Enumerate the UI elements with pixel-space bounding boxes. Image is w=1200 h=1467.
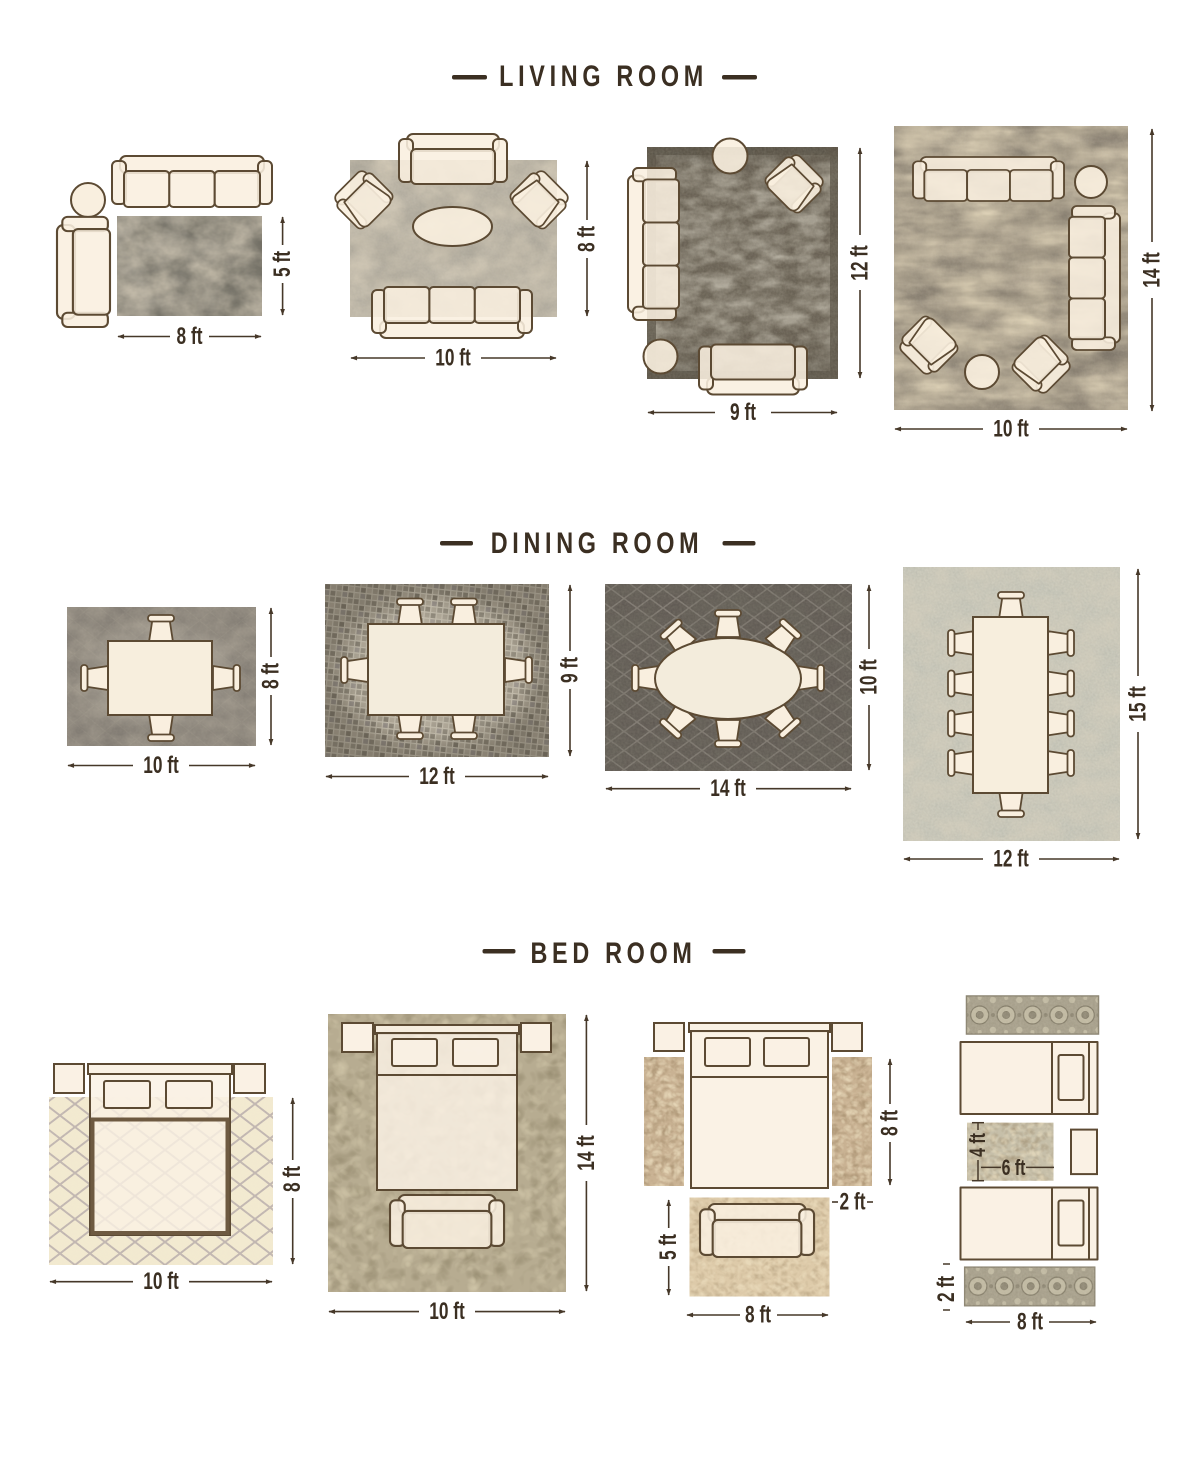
svg-text:10 ft: 10 ft — [993, 416, 1029, 442]
svg-text:BED ROOM: BED ROOM — [530, 936, 696, 969]
svg-text:10 ft: 10 ft — [435, 345, 471, 371]
svg-text:9 ft: 9 ft — [557, 657, 583, 683]
svg-text:12 ft: 12 ft — [993, 846, 1029, 872]
svg-text:14 ft: 14 ft — [1139, 252, 1165, 288]
svg-text:4 ft: 4 ft — [967, 1133, 991, 1157]
svg-text:8 ft: 8 ft — [877, 1110, 903, 1136]
svg-text:6 ft: 6 ft — [1002, 1157, 1026, 1181]
svg-text:10 ft: 10 ft — [143, 752, 179, 778]
svg-text:8 ft: 8 ft — [574, 226, 600, 252]
svg-text:8 ft: 8 ft — [745, 1302, 771, 1328]
svg-text:8 ft: 8 ft — [280, 1166, 306, 1192]
svg-text:8 ft: 8 ft — [177, 323, 203, 349]
svg-text:8 ft: 8 ft — [258, 663, 284, 689]
svg-text:14 ft: 14 ft — [710, 776, 746, 802]
svg-text:LIVING ROOM: LIVING ROOM — [499, 59, 708, 92]
svg-text:10 ft: 10 ft — [429, 1298, 465, 1324]
svg-text:12 ft: 12 ft — [847, 245, 873, 281]
svg-text:2 ft: 2 ft — [933, 1276, 959, 1302]
svg-text:5 ft: 5 ft — [656, 1234, 682, 1260]
svg-text:9 ft: 9 ft — [730, 399, 756, 425]
svg-text:5 ft: 5 ft — [269, 251, 295, 277]
svg-text:DINING ROOM: DINING ROOM — [491, 526, 704, 559]
svg-text:12 ft: 12 ft — [419, 763, 455, 789]
svg-text:8 ft: 8 ft — [1017, 1309, 1043, 1335]
svg-text:2 ft: 2 ft — [840, 1189, 866, 1215]
svg-text:14 ft: 14 ft — [573, 1135, 599, 1171]
svg-text:10 ft: 10 ft — [856, 659, 882, 695]
svg-text:10 ft: 10 ft — [143, 1269, 179, 1295]
svg-text:15 ft: 15 ft — [1125, 686, 1151, 722]
